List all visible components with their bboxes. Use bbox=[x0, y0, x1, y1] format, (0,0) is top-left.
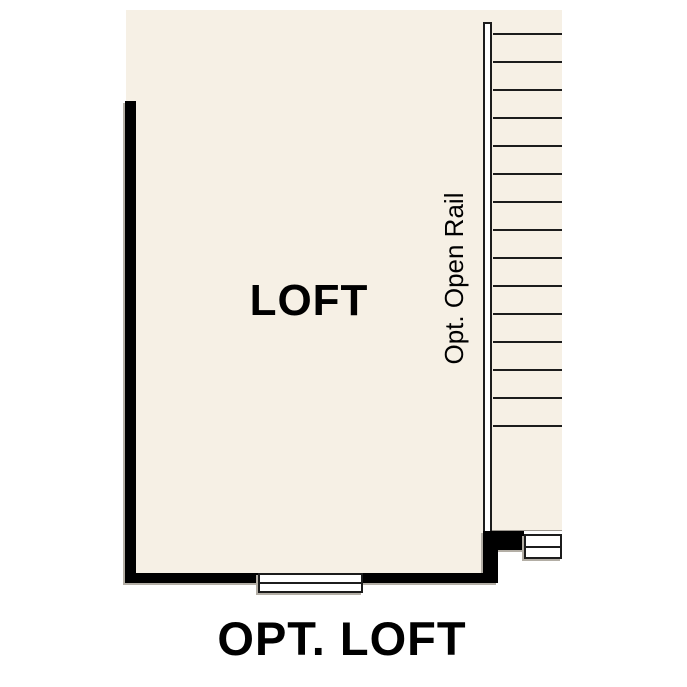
stair-tread bbox=[493, 201, 562, 203]
stair-tread bbox=[493, 285, 562, 287]
stair-tread bbox=[493, 397, 562, 399]
stair-tread bbox=[493, 313, 562, 315]
stair-tread bbox=[493, 229, 562, 231]
plan-caption: OPT. LOFT bbox=[192, 611, 492, 667]
stair-tread bbox=[493, 341, 562, 343]
rail-label: Opt. Open Rail bbox=[439, 185, 470, 372]
stair-tread bbox=[493, 369, 562, 371]
staircase bbox=[493, 10, 562, 531]
stair-tread bbox=[493, 145, 562, 147]
left-wall bbox=[125, 101, 136, 583]
cased-opening-stairs-midline bbox=[526, 546, 560, 548]
stair-tread bbox=[493, 117, 562, 119]
cased-opening-stairs bbox=[524, 534, 562, 559]
stair-tread bbox=[493, 61, 562, 63]
stair-tread bbox=[493, 257, 562, 259]
cased-opening-bottom bbox=[258, 573, 363, 593]
stair-wall-stub bbox=[483, 550, 498, 573]
stair-tread bbox=[493, 33, 562, 35]
stair-tread bbox=[493, 425, 562, 427]
stair-tread bbox=[493, 173, 562, 175]
stair-wall-bar bbox=[483, 531, 524, 550]
loft-floor-lower-area bbox=[126, 531, 483, 573]
stair-tread bbox=[493, 89, 562, 91]
room-label: LOFT bbox=[209, 275, 409, 327]
floor-plan-canvas: LOFT Opt. Open Rail OPT. LOFT bbox=[0, 0, 687, 687]
cased-opening-bottom-midline bbox=[260, 582, 361, 584]
open-rail bbox=[483, 22, 492, 533]
